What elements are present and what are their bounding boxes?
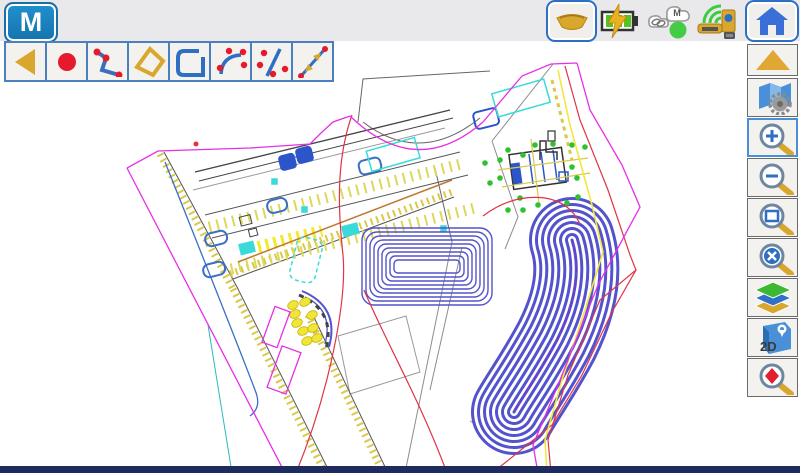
draw-polyline-button[interactable] (86, 41, 129, 82)
offset-line-icon (255, 46, 289, 78)
zoom-out-icon (751, 161, 795, 195)
draw-offset-line-button[interactable] (250, 41, 293, 82)
layers-button[interactable] (747, 278, 798, 317)
bottom-status-bar (0, 466, 800, 473)
polygon-icon (132, 46, 166, 78)
layer-building-topright (498, 131, 590, 203)
zoom-in-icon (751, 121, 795, 155)
map-settings-button[interactable] (747, 78, 798, 117)
sidebar-up-button[interactable] (747, 44, 798, 76)
map-canvas[interactable] (0, 41, 800, 466)
draw-toolbar (4, 41, 332, 82)
map-settings-icon (751, 81, 795, 115)
draw-arc-button[interactable] (209, 41, 252, 82)
cloud-connection-icon: M (645, 3, 693, 39)
view-2d-button[interactable]: 2D (747, 318, 798, 357)
magnet-logo-button[interactable]: M (4, 2, 58, 43)
up-triangle-icon (753, 48, 793, 72)
zoom-window-icon (751, 201, 795, 235)
zoom-out-button[interactable] (747, 158, 798, 197)
line-arrows-icon (296, 46, 330, 78)
layer-stockpile-rect (362, 228, 492, 305)
point-icon (52, 48, 82, 76)
home-icon (756, 7, 788, 35)
logo-letter: M (20, 7, 43, 38)
layers-icon (751, 280, 795, 316)
instrument-connection-status[interactable] (696, 2, 742, 40)
view-2d-label: 2D (760, 339, 777, 354)
polyline-icon (92, 47, 124, 77)
draw-point-button[interactable] (45, 41, 88, 82)
status-bar: M (546, 1, 799, 41)
layer-orange-line (238, 180, 452, 262)
cloud-connection-status[interactable]: M (645, 3, 693, 39)
arc-through-points-icon (214, 46, 248, 78)
draw-line-arrows-button[interactable] (291, 41, 334, 82)
battery-charging-icon (600, 4, 642, 38)
battery-status[interactable] (600, 4, 642, 38)
instrument-connected-icon (696, 2, 742, 40)
prism-button[interactable] (546, 0, 597, 42)
top-bar: M M (0, 0, 800, 41)
zoom-extents-button[interactable] (747, 238, 798, 277)
zoom-window-button[interactable] (747, 198, 798, 237)
draw-polygon-button[interactable] (127, 41, 170, 82)
closed-boundary-icon (173, 46, 207, 78)
find-point-icon (751, 361, 795, 395)
find-point-button[interactable] (747, 358, 798, 397)
home-button[interactable] (745, 0, 799, 42)
layer-stockpile-banana (514, 240, 576, 412)
zoom-extents-icon (751, 241, 795, 275)
back-button[interactable] (4, 41, 47, 82)
prism-icon (553, 7, 591, 35)
back-triangle-icon (11, 48, 41, 76)
zoom-in-button[interactable] (747, 118, 798, 157)
draw-boundary-button[interactable] (168, 41, 211, 82)
svg-text:M: M (673, 8, 681, 18)
layer-yellow-points (286, 296, 323, 347)
